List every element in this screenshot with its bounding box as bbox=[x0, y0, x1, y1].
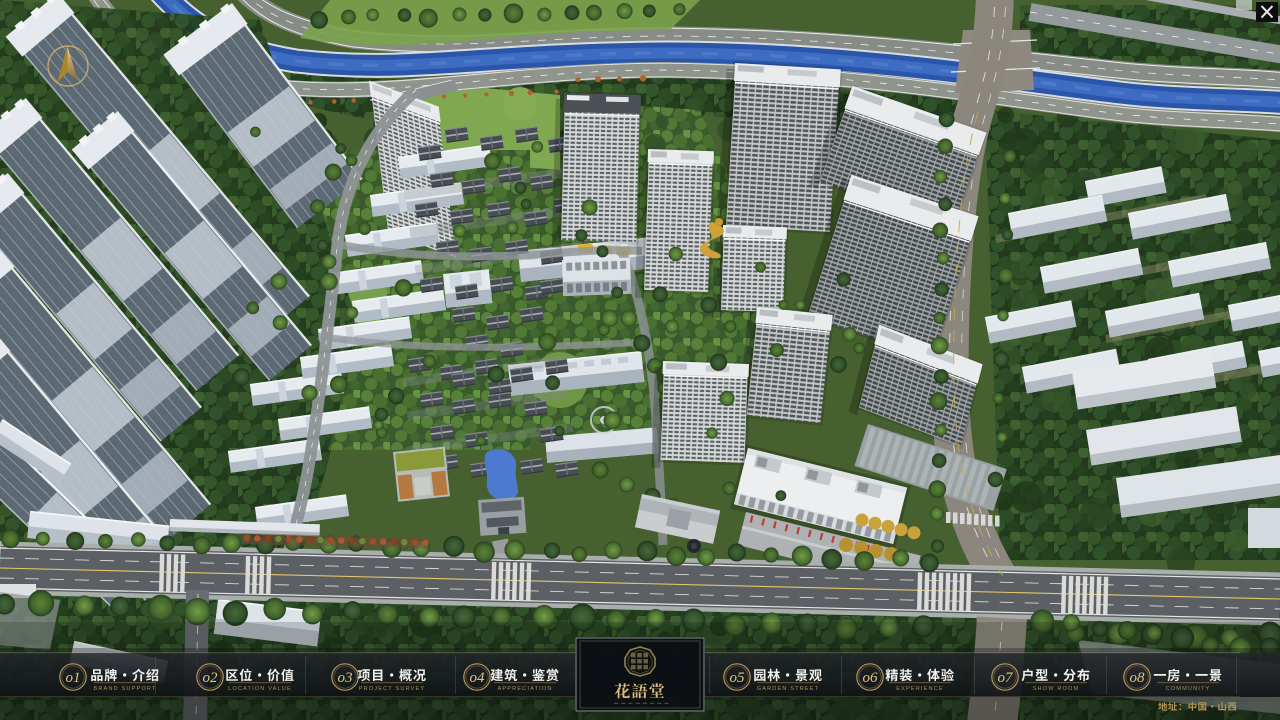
svg-text:GARDEN STREET: GARDEN STREET bbox=[757, 686, 820, 692]
svg-text:o5: o5 bbox=[730, 670, 746, 686]
svg-text:o4: o4 bbox=[470, 670, 486, 686]
svg-text:EXPERIENCE: EXPERIENCE bbox=[896, 686, 944, 692]
svg-text:o7: o7 bbox=[998, 670, 1015, 686]
svg-text:APPRECIATION: APPRECIATION bbox=[497, 686, 552, 692]
svg-text:o2: o2 bbox=[203, 670, 219, 686]
svg-text:BRAND SUPPORT: BRAND SUPPORT bbox=[93, 686, 156, 692]
svg-text:PROJECT SURVEY: PROJECT SURVEY bbox=[359, 686, 426, 692]
svg-text:SHOW ROOM: SHOW ROOM bbox=[1033, 686, 1080, 692]
svg-text:o1: o1 bbox=[66, 670, 81, 686]
svg-text:LOCATION VALUE: LOCATION VALUE bbox=[228, 686, 292, 692]
svg-text:o6: o6 bbox=[863, 670, 879, 686]
svg-text:o3: o3 bbox=[338, 670, 353, 686]
svg-text:COMMUNITY: COMMUNITY bbox=[1166, 686, 1211, 692]
svg-text:o8: o8 bbox=[1130, 670, 1146, 686]
